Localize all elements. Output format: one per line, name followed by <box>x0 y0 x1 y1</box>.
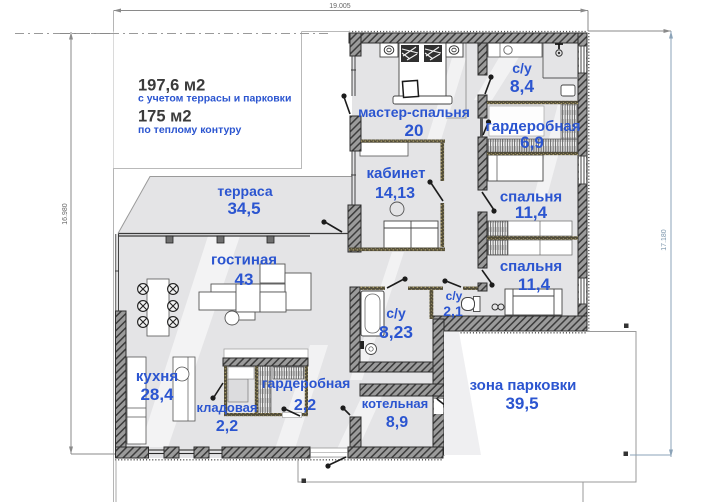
svg-text:34,5: 34,5 <box>227 199 260 218</box>
svg-text:2,2: 2,2 <box>294 397 316 414</box>
svg-text:кухня: кухня <box>136 368 178 385</box>
svg-text:14,13: 14,13 <box>375 185 415 202</box>
svg-text:175 м2: 175 м2 <box>138 108 192 126</box>
svg-text:с/у: с/у <box>386 305 406 321</box>
svg-text:гостиная: гостиная <box>211 252 277 269</box>
svg-text:8,9: 8,9 <box>386 414 408 431</box>
svg-text:с учетом террасы и парковки: с учетом террасы и парковки <box>138 93 291 105</box>
svg-text:терраса: терраса <box>217 183 272 199</box>
svg-text:17.180: 17.180 <box>661 229 668 251</box>
svg-text:с/у: с/у <box>512 60 532 76</box>
svg-text:6,9: 6,9 <box>520 133 544 152</box>
svg-text:11,4: 11,4 <box>515 203 548 222</box>
svg-text:11,4: 11,4 <box>518 275 551 294</box>
svg-text:19.005: 19.005 <box>329 3 351 10</box>
svg-text:гардеробная: гардеробная <box>262 375 351 391</box>
svg-text:39,5: 39,5 <box>505 394 538 413</box>
svg-text:43: 43 <box>235 270 254 289</box>
svg-text:2,2: 2,2 <box>216 418 238 435</box>
svg-text:кладовая: кладовая <box>197 400 258 415</box>
svg-text:8,23: 8,23 <box>379 322 413 342</box>
svg-text:с/у: с/у <box>446 289 463 303</box>
svg-text:2,1: 2,1 <box>443 303 463 319</box>
svg-text:спальня: спальня <box>500 258 562 275</box>
svg-text:8,4: 8,4 <box>510 76 535 96</box>
svg-text:зона парковки: зона парковки <box>470 377 577 394</box>
svg-text:по теплому контуру: по теплому контуру <box>138 124 241 136</box>
svg-text:16.980: 16.980 <box>62 203 69 225</box>
svg-text:кабинет: кабинет <box>367 165 426 182</box>
svg-text:28,4: 28,4 <box>140 385 174 404</box>
svg-text:мастер-спальня: мастер-спальня <box>358 104 470 120</box>
svg-text:20: 20 <box>405 121 424 140</box>
svg-text:котельная: котельная <box>362 396 428 411</box>
